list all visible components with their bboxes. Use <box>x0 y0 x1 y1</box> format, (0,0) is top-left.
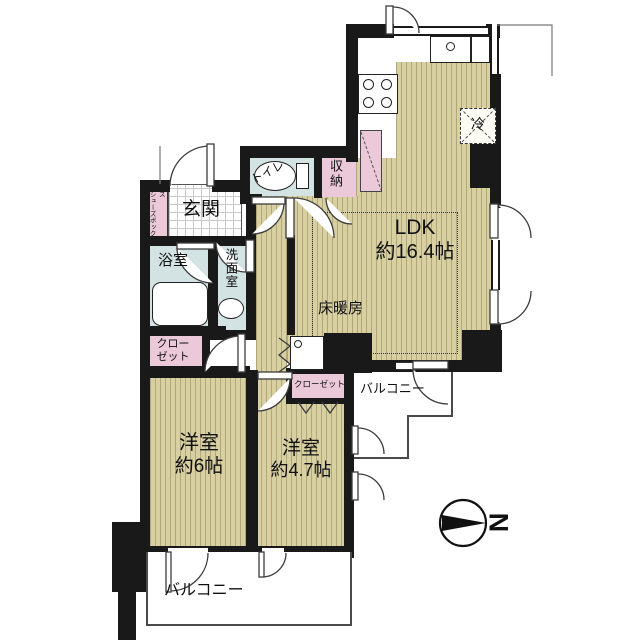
closet-sub-label: クローゼット <box>294 380 344 390</box>
floor-plan: LDK 約16.4帖 床暖房 冷 収納 トイレ 玄関 シューズボックス 浴室 洗… <box>0 0 640 640</box>
wall <box>470 140 500 188</box>
balcony-right-label: バルコニー <box>360 382 425 397</box>
toilet-tank <box>296 163 309 189</box>
compass-arrow-icon <box>442 515 486 531</box>
washroom-label: 洗面室 <box>223 248 237 289</box>
ldk-size: 約16.4帖 <box>376 241 455 263</box>
right-window-top <box>490 24 499 76</box>
room6-label: 洋室 約6帖 <box>156 432 242 478</box>
washer-drain <box>294 340 302 348</box>
burner <box>363 97 374 108</box>
compass-circle <box>440 500 486 546</box>
sink-faucet <box>446 42 455 51</box>
closet-main-label: クローゼット <box>152 338 194 363</box>
wall <box>287 235 295 335</box>
wall <box>314 156 322 198</box>
room6-size: 約6帖 <box>175 456 224 477</box>
bath-label: 浴室 <box>158 252 188 269</box>
shoe-box-label: シューズボックス <box>147 191 168 237</box>
storage-label: 収納 <box>327 159 342 189</box>
ldk-label: LDK 約16.4帖 <box>355 216 475 264</box>
wall <box>346 36 358 162</box>
burner <box>363 79 374 90</box>
wall <box>244 146 358 158</box>
right-window-mid <box>491 240 500 290</box>
room47-size: 約4.7帖 <box>270 460 331 480</box>
entrance-label: 玄関 <box>182 199 220 221</box>
pantry-box <box>360 130 382 192</box>
floor-heating-label: 床暖房 <box>318 300 363 317</box>
refrigerator-label: 冷 <box>471 116 485 132</box>
kitchen-counter <box>430 36 490 63</box>
wall <box>118 592 136 640</box>
kitchen-window <box>394 26 488 36</box>
wall <box>324 333 372 373</box>
wall <box>208 246 218 330</box>
compass-north-label: N <box>482 513 513 533</box>
ldk-name: LDK <box>395 216 436 239</box>
corridor-floor <box>256 196 287 377</box>
wall <box>146 236 250 246</box>
wall <box>208 330 256 340</box>
ldk-bottom-window <box>396 362 416 370</box>
room47-name: 洋室 <box>282 438 320 459</box>
wall <box>246 370 258 548</box>
wall <box>462 330 502 372</box>
wash-basin <box>218 298 244 319</box>
wall <box>344 370 354 556</box>
room47-label: 洋室 約4.7帖 <box>258 438 344 482</box>
burner <box>381 97 392 108</box>
wall <box>202 334 210 370</box>
room6-name: 洋室 <box>179 432 219 454</box>
counter-divider <box>470 36 472 63</box>
wall <box>246 194 256 338</box>
bathtub <box>152 282 208 326</box>
balcony-bottom-label: バルコニー <box>164 582 244 600</box>
burner <box>381 79 392 90</box>
wall <box>146 366 250 378</box>
wall <box>112 522 146 592</box>
wall <box>212 180 242 192</box>
